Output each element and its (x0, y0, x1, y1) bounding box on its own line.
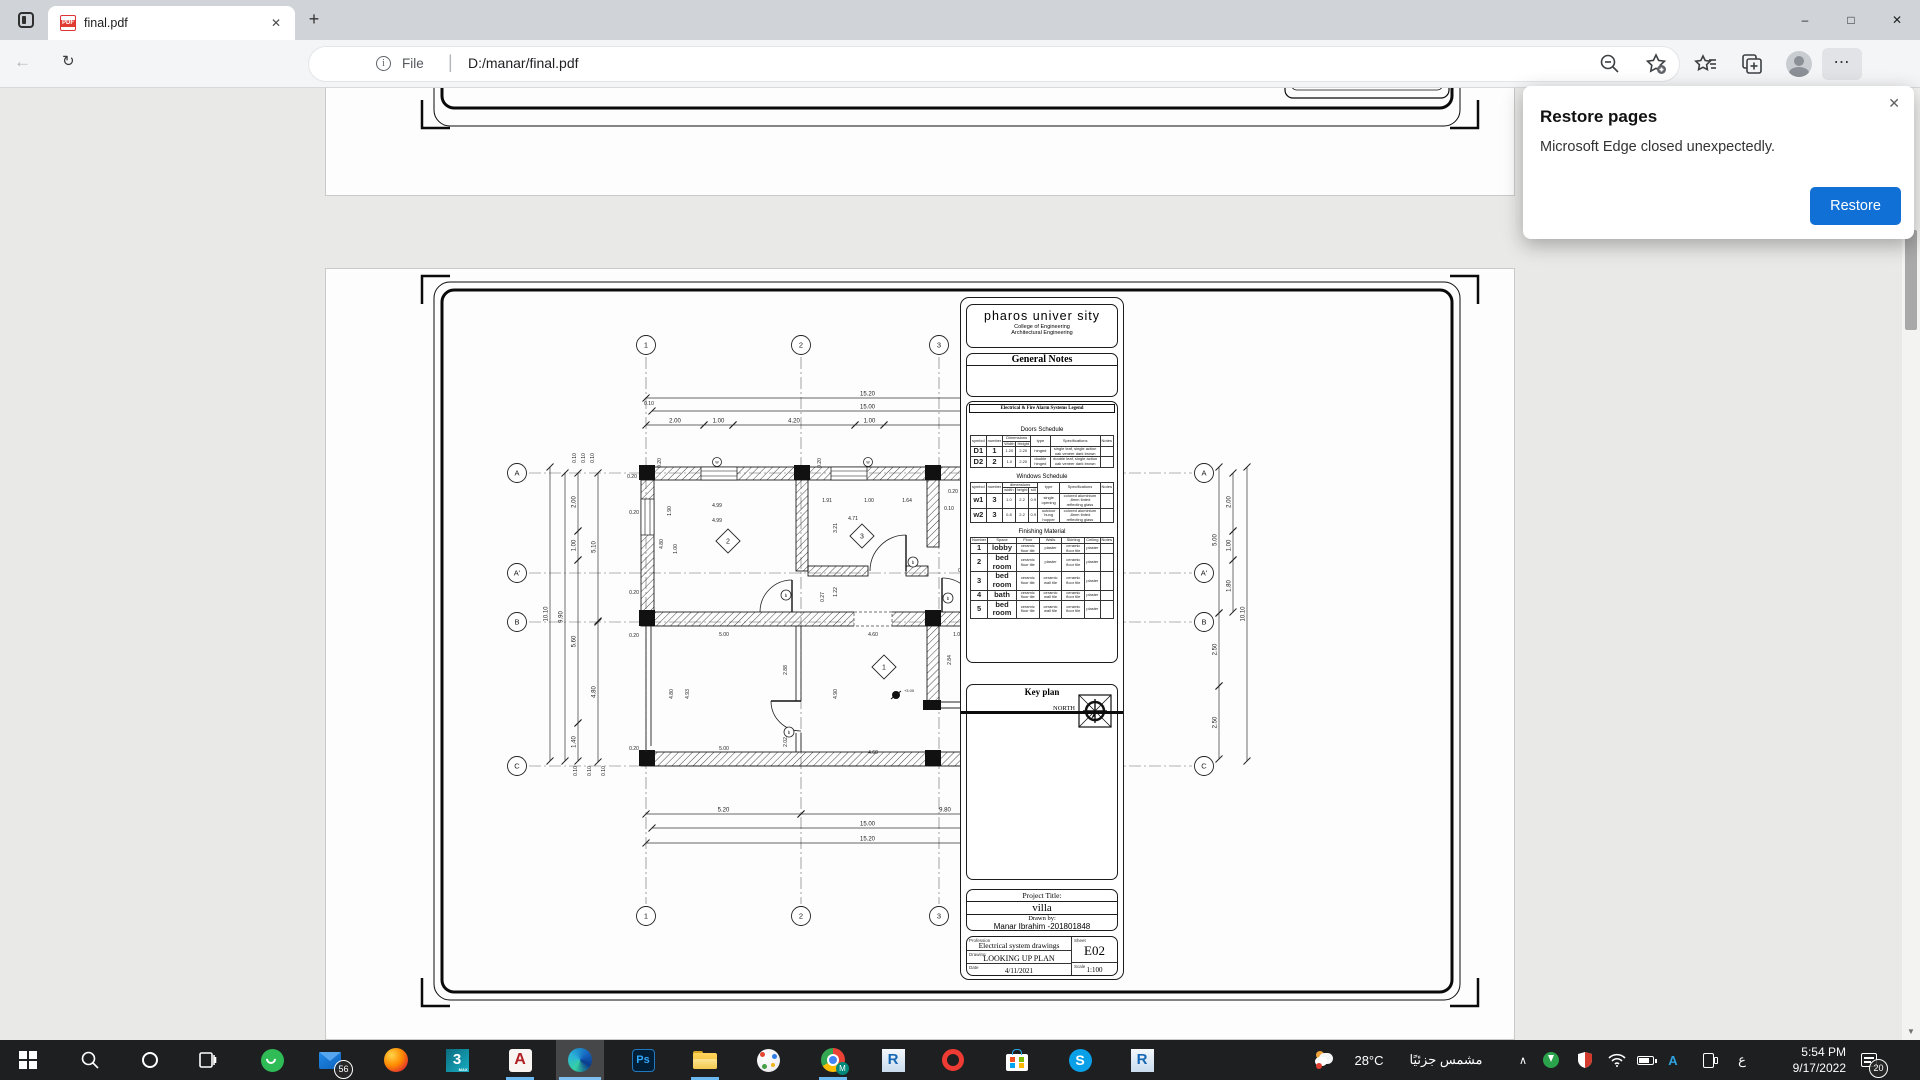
svg-text:1.00: 1.00 (673, 544, 679, 554)
mail-badge: 56 (334, 1060, 353, 1079)
svg-text:1: 1 (882, 665, 886, 672)
browser-tab[interactable]: final.pdf ✕ (48, 6, 295, 40)
scale-label: Scale (1074, 964, 1085, 969)
svg-text:4.60: 4.60 (868, 632, 878, 638)
svg-text:4.60: 4.60 (868, 750, 878, 756)
address-scheme: File (402, 56, 424, 71)
svg-text:B: B (514, 618, 519, 627)
svg-text:0.10: 0.10 (644, 401, 654, 407)
svg-text:A: A (1201, 469, 1206, 478)
dialog-close-icon[interactable]: ✕ (1888, 95, 1900, 112)
general-notes-title: General Notes (967, 354, 1117, 366)
svg-text:4.80: 4.80 (592, 686, 598, 698)
scrollbar-thumb[interactable] (1905, 230, 1917, 330)
cortana-icon[interactable] (126, 1040, 174, 1080)
tray-expand-icon[interactable]: ∧ (1510, 1040, 1536, 1080)
svg-text:2.00: 2.00 (669, 419, 681, 425)
legend-title: Electrical & Fire Alarm Systems Legend (969, 404, 1115, 413)
drawing-label: Drawing (969, 952, 986, 957)
project-box: Project Title: villa Drawn by: Manar Ibr… (966, 889, 1118, 931)
doors-schedule-title: Doors Schedule (967, 427, 1117, 433)
svg-text:0.10: 0.10 (601, 766, 607, 776)
sheet-label: Sheet (1074, 938, 1086, 943)
weather-desc[interactable]: مشمس جزئيًا (1392, 1040, 1500, 1080)
svg-text:1: 1 (644, 912, 648, 921)
dialog-message: Microsoft Edge closed unexpectedly. (1540, 139, 1775, 155)
title-block-header: pharos univer sity College of Engineerin… (966, 304, 1118, 348)
doors-schedule-table: symbolnumberDimensionstypeSpecifications… (970, 435, 1114, 468)
svg-text:1.00: 1.00 (864, 419, 876, 425)
drawn-by-label: Drawn by: (967, 915, 1117, 922)
svg-text:1.40: 1.40 (572, 736, 578, 748)
svg-text:3: 3 (937, 341, 941, 350)
taskbar: 56 3 MAX A Ps M R (0, 1040, 1920, 1080)
start-button[interactable] (4, 1040, 52, 1080)
tray-time: 5:54 PM (1762, 1044, 1846, 1060)
photoshop-icon[interactable]: Ps (619, 1040, 667, 1080)
3dsmax-icon[interactable]: 3 MAX (433, 1040, 481, 1080)
svg-text:0.20: 0.20 (629, 590, 639, 596)
schedules-box: Electrical & Fire Alarm Systems Legend D… (966, 401, 1118, 663)
page-info-icon[interactable]: i (376, 56, 391, 71)
dialog-title: Restore pages (1540, 107, 1657, 127)
svg-text:1: 1 (644, 341, 648, 350)
svg-text:2.00: 2.00 (1227, 496, 1233, 508)
zoom-out-icon[interactable] (1598, 52, 1622, 76)
window-maximize-button[interactable]: □ (1828, 0, 1874, 40)
svg-text:0.10: 0.10 (581, 453, 587, 463)
scroll-down-icon[interactable]: ▼ (1902, 1024, 1920, 1040)
collections-icon[interactable] (1740, 52, 1764, 76)
sheet-number: E02 (1072, 943, 1117, 959)
svg-text:0.27: 0.27 (820, 592, 826, 602)
wifi-icon[interactable] (1604, 1040, 1630, 1080)
date-label: Date (969, 965, 979, 970)
new-tab-button[interactable]: + (302, 8, 326, 32)
svg-text:0.20: 0.20 (629, 510, 639, 516)
notification-center-icon[interactable]: 20 (1852, 1040, 1886, 1080)
svg-text:0.20: 0.20 (657, 458, 663, 468)
project-title: villa (967, 902, 1117, 915)
file-explorer-icon[interactable] (681, 1040, 729, 1080)
windows-schedule-table: symbolnumberdimensionstypeSpecifications… (970, 482, 1114, 524)
floor-plan-svg: 11223344AAA'A'BBCC15.2015.002.001.004.20… (326, 269, 1516, 1041)
refresh-button-icon[interactable]: ↻ (62, 52, 75, 70)
svg-text:4.90: 4.90 (833, 689, 839, 699)
skype-icon[interactable]: S (1056, 1040, 1104, 1080)
firefox-icon[interactable] (372, 1040, 420, 1080)
svg-text:2: 2 (726, 539, 730, 546)
svg-text:0.20: 0.20 (817, 458, 823, 468)
svg-text:10.10: 10.10 (1241, 606, 1247, 622)
svg-text:15.20: 15.20 (860, 837, 876, 843)
svg-text:5.00: 5.00 (719, 746, 729, 752)
svg-text:0.10: 0.10 (587, 766, 593, 776)
whatsapp-icon[interactable] (248, 1040, 296, 1080)
idm-icon[interactable] (1538, 1040, 1564, 1080)
revit2-icon[interactable]: R (1118, 1040, 1166, 1080)
svg-text:3: 3 (937, 912, 941, 921)
svg-text:1.90: 1.90 (667, 506, 673, 516)
svg-text:1.64: 1.64 (902, 498, 912, 504)
tab-close-icon[interactable]: ✕ (267, 14, 285, 32)
tab-title: final.pdf (84, 16, 128, 30)
svg-text:A': A' (1201, 569, 1208, 578)
svg-text:9.90: 9.90 (559, 611, 565, 623)
svg-text:0.20: 0.20 (627, 474, 637, 480)
favorites-ic on[interactable] (1694, 52, 1718, 76)
svg-text:15.00: 15.00 (860, 405, 876, 411)
svg-text:0.10: 0.10 (944, 506, 954, 512)
sheet-info-box: Profession Electrical system drawings Dr… (966, 936, 1118, 976)
svg-text:15.00: 15.00 (860, 822, 876, 828)
pdf-page-previous (325, 88, 1515, 196)
svg-text:4.71: 4.71 (848, 516, 858, 522)
svg-text:2: 2 (799, 341, 803, 350)
security-shield-icon[interactable] (1572, 1040, 1598, 1080)
svg-text:4.80: 4.80 (659, 539, 665, 549)
restore-button[interactable]: Restore (1810, 187, 1901, 225)
svg-text:1.91: 1.91 (822, 498, 832, 504)
restore-pages-dialog: Restore pages Microsoft Edge closed unex… (1523, 86, 1914, 239)
meet-badge-icon: M (836, 1062, 849, 1075)
drawn-by-name: Manar Ibrahim -201801848 (967, 922, 1117, 931)
autodesk-icon[interactable]: A (1660, 1040, 1686, 1080)
autocad-icon[interactable]: A (496, 1040, 544, 1080)
svg-text:0.20: 0.20 (629, 633, 639, 639)
key-plan-line (961, 711, 1123, 714)
svg-text:2.50: 2.50 (1213, 716, 1219, 728)
weather-temp[interactable]: 28°C (1344, 1040, 1394, 1080)
windows-schedule-title: Windows Schedule (967, 474, 1117, 480)
svg-text:B: B (1201, 618, 1206, 627)
svg-text:5.00: 5.00 (719, 632, 729, 638)
address-divider: | (448, 52, 453, 73)
svg-text:2.88: 2.88 (783, 665, 789, 675)
window-minimize-button[interactable]: – (1782, 0, 1828, 40)
svg-text:0.10: 0.10 (590, 453, 596, 463)
tray-date: 9/17/2022 (1762, 1060, 1846, 1076)
your-phone-icon[interactable] (1694, 1040, 1722, 1080)
svg-text:2.84: 2.84 (947, 655, 953, 665)
svg-text:C: C (514, 762, 520, 771)
key-plan-box: Key plan NORTH (966, 684, 1118, 880)
language-indicator[interactable]: ع (1730, 1040, 1754, 1080)
svg-text:15.20: 15.20 (860, 392, 876, 398)
svg-text:4.80: 4.80 (669, 689, 675, 699)
browser-tab-strip: final.pdf ✕ + – □ ✕ (0, 0, 1920, 40)
svg-text:4.99: 4.99 (712, 503, 722, 509)
window-close-button[interactable]: ✕ (1874, 0, 1920, 40)
svg-text:0.20: 0.20 (629, 746, 639, 752)
svg-text:3: 3 (860, 534, 864, 541)
tray-clock[interactable]: 5:54 PM 9/17/2022 (1762, 1044, 1846, 1076)
profile-avatar[interactable] (1786, 51, 1812, 77)
svg-text:1.00: 1.00 (1227, 539, 1233, 551)
profession-label: Profession (969, 938, 990, 943)
svg-text:0.10: 0.10 (573, 766, 579, 776)
settings-menu-icon[interactable]: ⋯ (1822, 48, 1862, 80)
svg-text:1.00: 1.00 (713, 419, 725, 425)
svg-text:1.22: 1.22 (833, 587, 839, 597)
svg-text:A: A (514, 469, 519, 478)
weather-icon[interactable] (1312, 1040, 1340, 1080)
svg-text:9.80: 9.80 (939, 808, 951, 814)
svg-text:5.10: 5.10 (592, 541, 598, 553)
opera-icon[interactable] (929, 1040, 977, 1080)
edge-icon[interactable] (556, 1040, 604, 1080)
svg-text:1.80: 1.80 (1227, 580, 1233, 592)
university-name: pharos univer sity (967, 309, 1117, 323)
svg-text:5.20: 5.20 (718, 808, 730, 814)
svg-text:2.02: 2.02 (783, 737, 789, 747)
svg-text:C: C (1201, 762, 1207, 771)
project-title-label: Project Title: (967, 890, 1117, 902)
svg-text:+3.00: +3.00 (904, 688, 915, 693)
pdf-page-current: 11223344AAA'A'BBCC15.2015.002.001.004.20… (325, 268, 1515, 1040)
svg-text:4.99: 4.99 (712, 518, 722, 524)
battery-icon[interactable] (1632, 1040, 1658, 1080)
svg-text:0.10: 0.10 (572, 453, 578, 463)
task-view-icon[interactable] (184, 1040, 232, 1080)
date-value: 4/11/2021 (967, 967, 1071, 975)
svg-text:2: 2 (799, 912, 803, 921)
svg-text:3.21: 3.21 (833, 523, 839, 533)
svg-text:4.20: 4.20 (788, 419, 800, 425)
pdf-favicon-icon (60, 15, 76, 31)
department-name: Architectural Engineering (967, 330, 1117, 336)
address-url[interactable]: D:/manar/final.pdf (468, 55, 579, 71)
notification-badge: 20 (1869, 1059, 1888, 1078)
revit-icon[interactable]: R (869, 1040, 917, 1080)
finishing-table: NumberSpaceFloorWallsSkirtingCeilingNote… (970, 537, 1114, 619)
svg-text:4.93: 4.93 (685, 689, 691, 699)
chrome-icon[interactable]: M (809, 1040, 857, 1080)
tab-actions-menu-icon[interactable] (14, 8, 38, 32)
mail-icon[interactable]: 56 (306, 1040, 354, 1080)
svg-text:A': A' (514, 569, 521, 578)
svg-text:5.00: 5.00 (1213, 534, 1219, 546)
svg-text:2.50: 2.50 (1213, 643, 1219, 655)
svg-text:1.00: 1.00 (864, 498, 874, 504)
add-favorite-icon[interactable] (1644, 52, 1668, 76)
paint3d-icon[interactable] (744, 1040, 792, 1080)
finishing-title: Finishing Material (967, 529, 1117, 535)
general-notes-box: General Notes (966, 353, 1118, 397)
ms-store-icon[interactable] (993, 1040, 1041, 1080)
back-button-icon[interactable]: ← (14, 52, 31, 72)
svg-text:5.60: 5.60 (572, 635, 578, 647)
search-icon[interactable] (66, 1040, 114, 1080)
svg-text:2.00: 2.00 (572, 496, 578, 508)
svg-text:10.10: 10.10 (544, 606, 550, 622)
svg-text:1.00: 1.00 (572, 539, 578, 551)
svg-text:0.20: 0.20 (948, 489, 958, 495)
